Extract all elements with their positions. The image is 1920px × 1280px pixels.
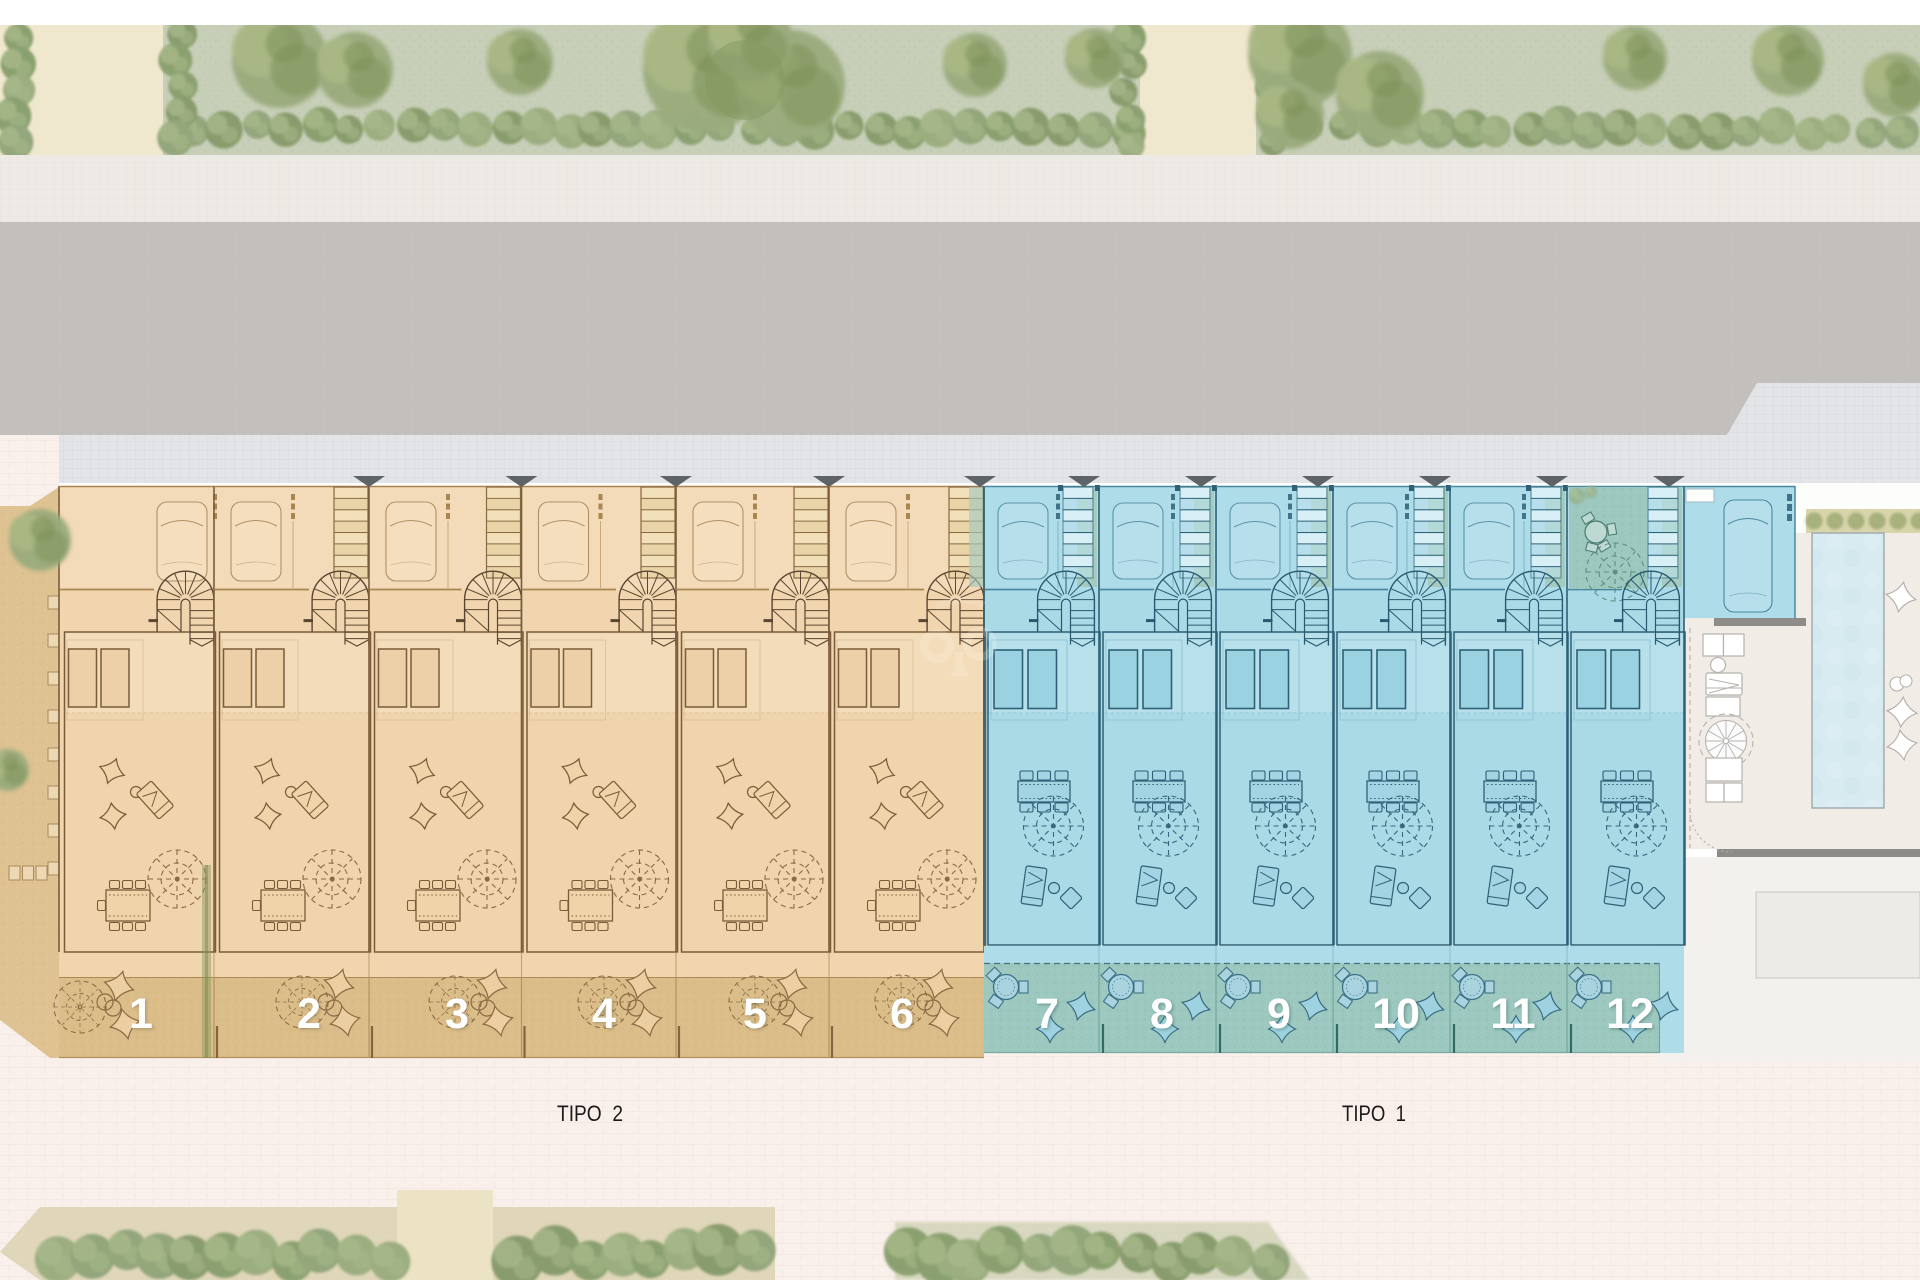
- svg-text:12: 12: [1606, 990, 1654, 1038]
- svg-text:11: 11: [1490, 990, 1535, 1038]
- svg-text:1: 1: [129, 990, 153, 1038]
- svg-text:5: 5: [743, 990, 767, 1038]
- svg-text:3: 3: [445, 990, 469, 1038]
- svg-text:TIPO 2: TIPO 2: [557, 1101, 623, 1126]
- svg-text:TIPO 1: TIPO 1: [1342, 1101, 1406, 1126]
- svg-text:2: 2: [297, 990, 321, 1038]
- svg-text:7: 7: [1035, 990, 1059, 1038]
- svg-text:10: 10: [1372, 990, 1420, 1038]
- svg-text:8: 8: [1150, 990, 1174, 1038]
- svg-text:4: 4: [592, 990, 616, 1038]
- svg-text:9: 9: [1267, 990, 1291, 1038]
- svg-text:6: 6: [890, 990, 914, 1038]
